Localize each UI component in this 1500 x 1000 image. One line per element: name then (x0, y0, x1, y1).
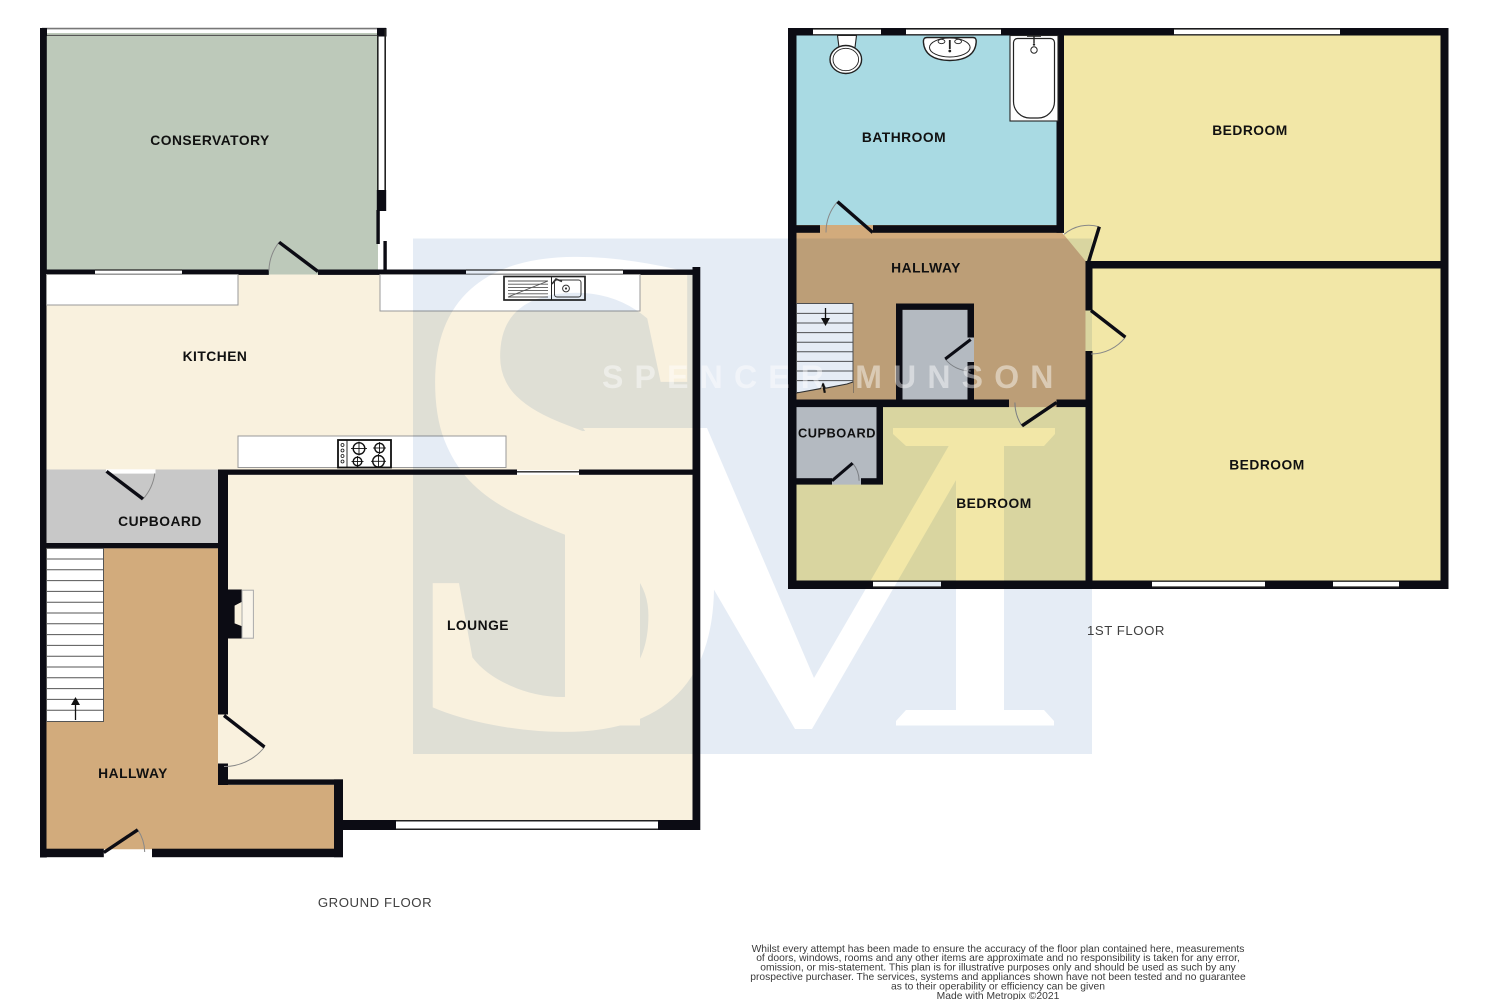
svg-text:BATHROOM: BATHROOM (862, 130, 946, 145)
svg-text:1ST FLOOR: 1ST FLOOR (1087, 623, 1165, 638)
svg-text:BEDROOM: BEDROOM (1229, 458, 1305, 473)
svg-text:BEDROOM: BEDROOM (1212, 123, 1288, 138)
svg-text:CUPBOARD: CUPBOARD (118, 514, 202, 529)
svg-text:HALLWAY: HALLWAY (98, 766, 168, 781)
svg-text:KITCHEN: KITCHEN (183, 349, 248, 364)
svg-text:SPENCER MUNSON: SPENCER MUNSON (602, 359, 1065, 395)
svg-text:GROUND FLOOR: GROUND FLOOR (318, 895, 432, 910)
svg-text:CONSERVATORY: CONSERVATORY (150, 133, 269, 148)
svg-text:Made with Metropix ©2021: Made with Metropix ©2021 (937, 991, 1060, 1000)
